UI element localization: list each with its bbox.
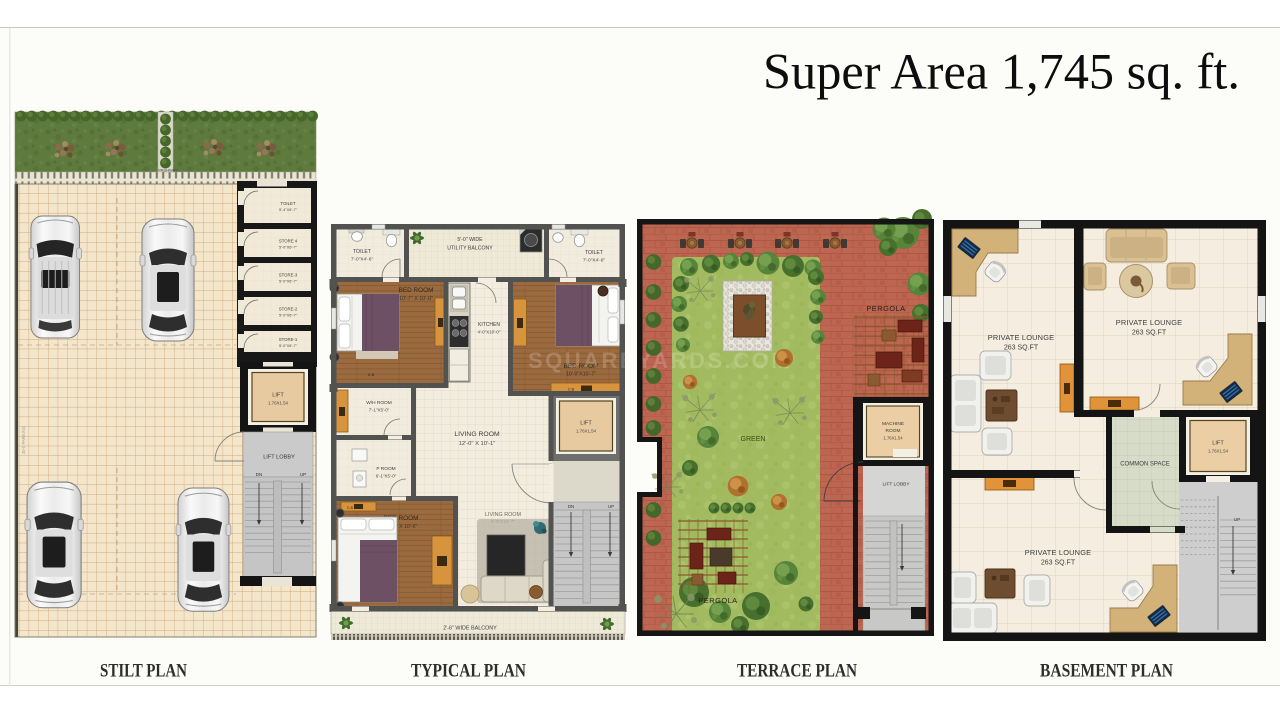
svg-text:TOILET: TOILET (585, 250, 604, 256)
svg-text:STILT PLAN: STILT PLAN (100, 661, 187, 682)
svg-text:1.76X1.54: 1.76X1.54 (1208, 449, 1229, 454)
svg-text:263 SQ.FT: 263 SQ.FT (1132, 330, 1167, 337)
svg-text:5'-4"X6'-7": 5'-4"X6'-7" (279, 207, 298, 212)
svg-text:5'-0"X6'-7": 5'-0"X6'-7" (279, 313, 298, 318)
svg-text:PERGOLA: PERGOLA (698, 596, 737, 605)
svg-text:PRIVATE LOUNGE: PRIVATE LOUNGE (1116, 318, 1183, 327)
svg-text:Super Area 1,745 sq. ft.: Super Area 1,745 sq. ft. (763, 45, 1240, 101)
svg-text:7'-1"X5'-0": 7'-1"X5'-0" (369, 408, 390, 413)
svg-text:30-0 PARKING: 30-0 PARKING (21, 426, 26, 454)
svg-text:5'-0" WIDE: 5'-0" WIDE (457, 237, 483, 243)
svg-text:5'-0"X6'-7": 5'-0"X6'-7" (279, 245, 298, 250)
svg-text:BASEMENT PLAN: BASEMENT PLAN (1040, 661, 1173, 682)
svg-text:7'-0"X4'-6": 7'-0"X4'-6" (583, 258, 606, 264)
svg-text:STORE 4: STORE 4 (279, 239, 298, 244)
svg-text:PERGOLA: PERGOLA (866, 304, 905, 313)
svg-text:10'-7" X 10'-0": 10'-7" X 10'-0" (399, 296, 433, 302)
svg-text:1.76X1.54: 1.76X1.54 (883, 436, 903, 441)
svg-text:LIVING ROOM: LIVING ROOM (454, 431, 500, 438)
svg-text:P ROOM: P ROOM (376, 466, 395, 472)
svg-text:LIFT: LIFT (1212, 441, 1224, 447)
svg-text:6'-1"X5'-0": 6'-1"X5'-0" (376, 474, 397, 479)
svg-text:GREEN: GREEN (741, 436, 766, 443)
svg-text:DN: DN (568, 504, 574, 509)
svg-text:12'-0" X 10'-1": 12'-0" X 10'-1" (459, 441, 496, 447)
svg-text:5'-0"X6'-7": 5'-0"X6'-7" (279, 343, 298, 348)
svg-text:TOILET: TOILET (281, 201, 296, 206)
svg-text:UP: UP (608, 504, 614, 509)
svg-text:ROOM: ROOM (886, 428, 901, 434)
svg-text:263 SQ.FT: 263 SQ.FT (1004, 345, 1039, 352)
svg-text:TYPICAL PLAN: TYPICAL PLAN (411, 661, 526, 682)
svg-text:UP: UP (1234, 517, 1240, 522)
svg-text:7'-0"X4'-6": 7'-0"X4'-6" (351, 257, 374, 263)
svg-text:STORE-2: STORE-2 (279, 307, 298, 312)
svg-text:C.B: C.B (568, 388, 575, 392)
svg-text:C.B: C.B (347, 506, 354, 510)
svg-text:TOILET: TOILET (353, 249, 372, 255)
svg-text:BED ROOM: BED ROOM (399, 287, 434, 294)
svg-text:STORE-1: STORE-1 (279, 337, 298, 342)
svg-text:5'-0"X6'-7": 5'-0"X6'-7" (279, 279, 298, 284)
svg-text:DN: DN (256, 472, 263, 477)
svg-text:UTILITY BALCONY: UTILITY BALCONY (447, 246, 493, 252)
svg-text:D.B: D.B (368, 372, 375, 377)
svg-text:LIFT: LIFT (272, 393, 284, 399)
svg-text:KITCHEN: KITCHEN (478, 322, 500, 328)
svg-text:PRIVATE LOUNGE: PRIVATE LOUNGE (988, 333, 1055, 342)
svg-text:MACHINE: MACHINE (882, 421, 904, 427)
svg-text:4'-0"X10'-0": 4'-0"X10'-0" (478, 330, 501, 335)
svg-text:1.76X1.54: 1.76X1.54 (576, 429, 597, 434)
svg-text:LIFT: LIFT (580, 421, 592, 427)
svg-text:2'-6" WIDE BALCONY: 2'-6" WIDE BALCONY (443, 626, 497, 632)
svg-text:1.76X1.54: 1.76X1.54 (268, 401, 289, 406)
svg-text:UP: UP (300, 472, 306, 477)
svg-text:LIFT LOBBY: LIFT LOBBY (263, 455, 295, 461)
svg-text:LIFT LOBBY: LIFT LOBBY (882, 482, 910, 488)
svg-text:W/H ROOM: W/H ROOM (366, 400, 392, 406)
svg-text:COMMON SPACE: COMMON SPACE (1120, 462, 1170, 468)
svg-text:TERRACE PLAN: TERRACE PLAN (737, 661, 857, 682)
svg-text:263 SQ.FT: 263 SQ.FT (1041, 560, 1076, 567)
svg-text:LIVING ROOM: LIVING ROOM (485, 512, 521, 518)
svg-text:PRIVATE LOUNGE: PRIVATE LOUNGE (1025, 548, 1092, 557)
svg-text:STORE-3: STORE-3 (279, 273, 298, 278)
